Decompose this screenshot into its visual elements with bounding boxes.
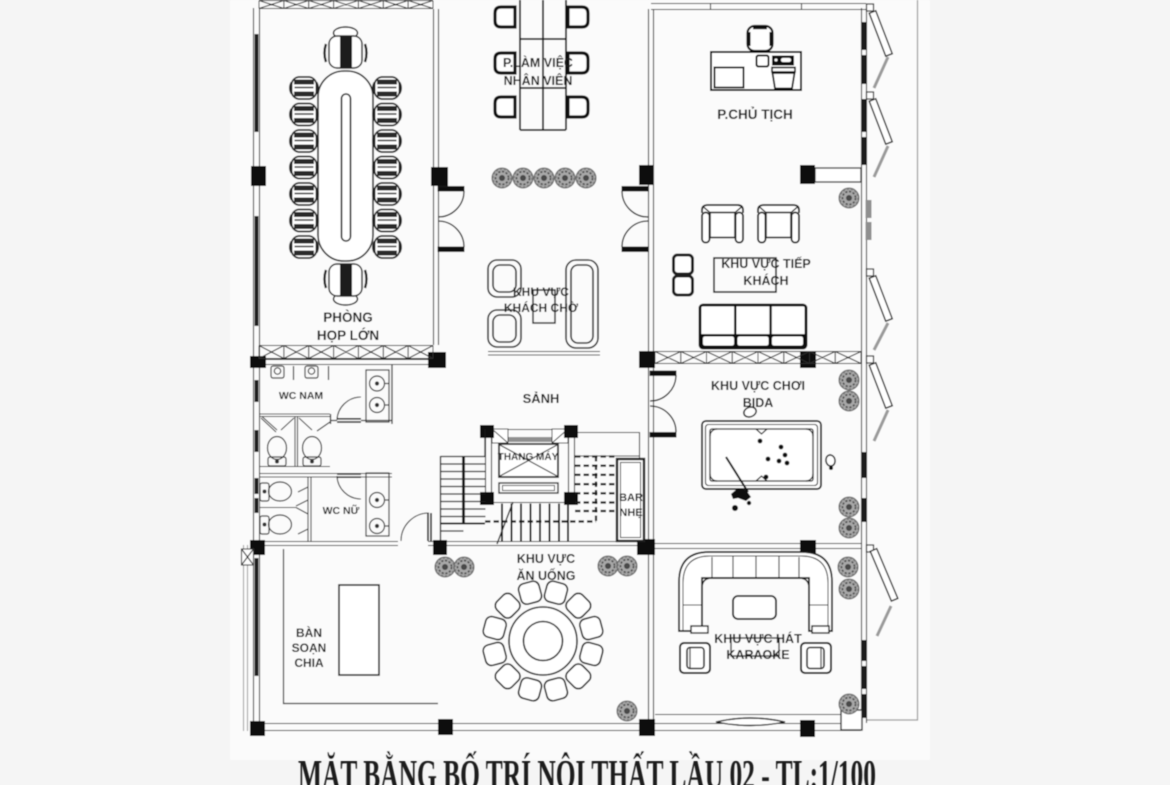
svg-text:KHU VỰC HÁT: KHU VỰC HÁT [714, 631, 802, 646]
svg-text:CHIA: CHIA [294, 656, 324, 670]
svg-text:BÀN: BÀN [296, 625, 322, 640]
svg-text:P.CHỦ TỊCH: P.CHỦ TỊCH [717, 107, 793, 122]
svg-text:WC NAM: WC NAM [279, 390, 324, 402]
svg-text:PHÒNG: PHÒNG [323, 310, 373, 325]
svg-text:MẶT BẰNG BỐ TRÍ NỘI THẤT LẦU 0: MẶT BẰNG BỐ TRÍ NỘI THẤT LẦU 02 - TL:1/1… [298, 751, 876, 785]
svg-text:BAR: BAR [619, 492, 643, 504]
svg-text:KHU VỰC TIẾP: KHU VỰC TIẾP [721, 256, 811, 271]
svg-text:HỌP LỚN: HỌP LỚN [317, 328, 379, 343]
svg-text:SẢNH: SẢNH [523, 391, 560, 406]
svg-text:NHẸ: NHẸ [619, 507, 642, 519]
svg-text:THANG MÁY: THANG MÁY [498, 450, 559, 463]
svg-text:ĂN UỐNG: ĂN UỐNG [516, 568, 575, 583]
svg-text:SOẠN: SOẠN [292, 641, 327, 655]
svg-text:KHU VỰC: KHU VỰC [513, 285, 569, 299]
svg-text:KARAOKE: KARAOKE [726, 648, 789, 662]
svg-text:KHU VỰC: KHU VỰC [517, 552, 575, 566]
svg-text:WC NỮ: WC NỮ [323, 504, 360, 517]
svg-text:KHÁCH CHỜ: KHÁCH CHỜ [504, 300, 579, 315]
svg-text:KHU VỰC CHƠI: KHU VỰC CHƠI [711, 379, 805, 393]
svg-text:P.LÀM VIỆC: P.LÀM VIỆC [503, 55, 573, 70]
svg-text:KHÁCH: KHÁCH [743, 273, 788, 288]
svg-text:NHÂN VIÊN: NHÂN VIÊN [504, 73, 573, 88]
